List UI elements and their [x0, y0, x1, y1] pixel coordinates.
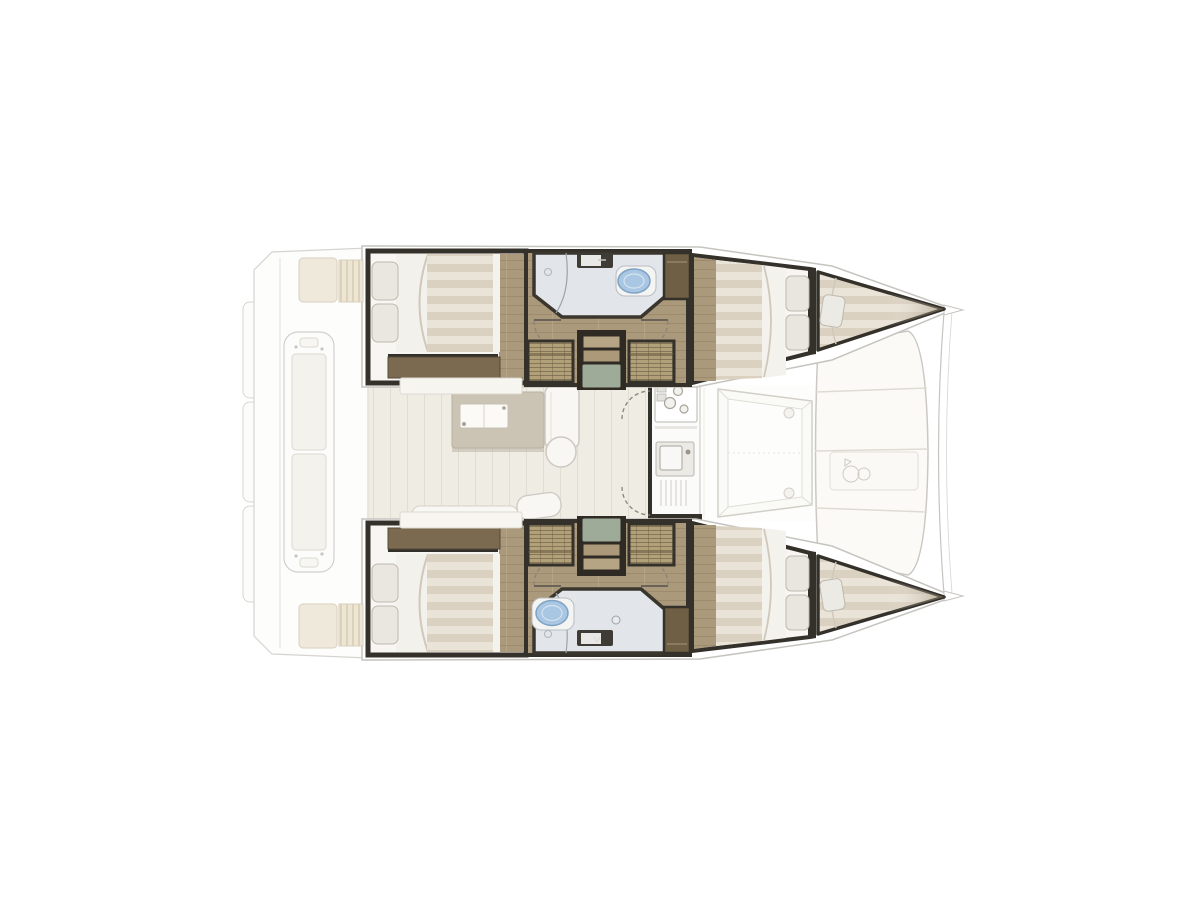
bench-cushion [292, 354, 326, 450]
sink-basin [581, 633, 601, 644]
galley-sink [656, 442, 694, 476]
floor-plan-canvas [0, 0, 1200, 900]
aft-cockpit [243, 248, 368, 658]
toilet-seat [536, 601, 568, 626]
cockpit-bench [284, 332, 334, 572]
forward-cockpit [700, 385, 818, 521]
bench-cushion [292, 454, 326, 550]
chaise-sofa [545, 386, 579, 467]
galley-stove [655, 382, 697, 422]
faucet-icon [686, 450, 691, 455]
toilet-seat [618, 269, 650, 293]
shower-drain-icon [612, 616, 620, 624]
bench-tab [300, 338, 318, 347]
catamaran-floor-plan [0, 0, 1200, 900]
galley-counter-edge [648, 380, 652, 514]
galley [648, 374, 702, 520]
seat-detail-circle [784, 408, 794, 418]
bench-tab [300, 558, 318, 567]
seat-detail-circle [784, 488, 794, 498]
salon [368, 374, 702, 524]
